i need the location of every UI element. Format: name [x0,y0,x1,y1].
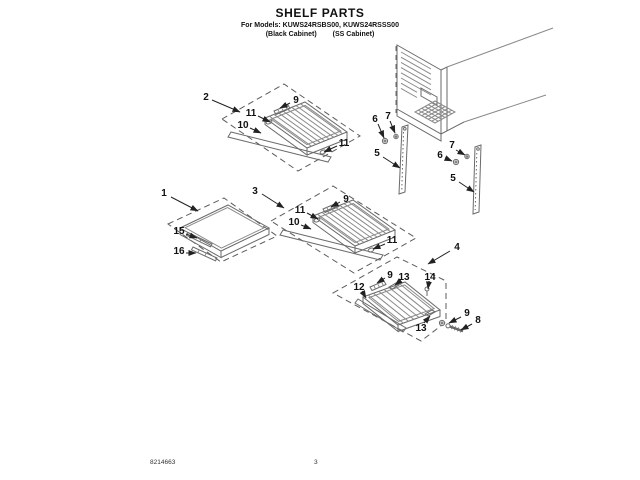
washer-icon [382,138,387,143]
mounting-screw [446,324,463,333]
glass-shelf-top [180,205,269,251]
callout-label-9: 9 [387,270,393,281]
callout-label-14: 14 [424,272,436,283]
callout-label-4: 4 [454,242,460,253]
assembly-outlines [168,84,446,341]
callout-arrow-8 [461,324,472,330]
cabinet-side-bottom-edge [464,95,546,122]
callout-label-15: 15 [173,226,185,237]
cabinet-floor-edge [441,122,464,134]
callout-label-9: 9 [464,308,470,319]
callout-label-16: 16 [173,246,185,257]
callout-label-11: 11 [387,235,398,246]
document-number: 8214663 [150,459,175,466]
callout-label-11: 11 [339,138,350,149]
callout-label-5: 5 [450,173,456,184]
shelf-wires [269,104,342,146]
callout-label-7: 7 [385,111,391,122]
callout-arrow-6 [445,158,452,161]
wire-shelf-frame [313,200,395,246]
callout-label-13: 13 [415,323,427,334]
screw-icon [465,154,469,158]
parts-diagram-page: SHELF PARTS For Models: KUWS24RSBS00, KU… [0,0,640,480]
cabinet-rear-view [396,28,553,141]
shelf-trim-clip-15 [187,233,213,247]
callout-label-11: 11 [295,205,306,216]
shelf-trim-clip-16 [192,247,218,261]
callout-arrow-5 [459,182,474,192]
callout-label-1: 1 [161,188,167,199]
cabinet-panel-thickness [441,67,447,131]
callout-label-6: 6 [437,150,443,161]
cabinet-side-top-edge [447,28,553,67]
shelf-wires [317,202,390,244]
screw-icon [394,134,398,138]
callout-label-9: 9 [293,95,299,106]
callout-label-6: 6 [372,114,378,125]
callout-arrow-7 [390,121,395,133]
rail-slots [402,132,404,190]
callout-label-2: 2 [203,92,209,103]
callout-arrow-7 [456,150,465,155]
callout-arrow-10 [301,225,311,229]
page-number: 3 [314,459,318,466]
callout-arrow-3 [262,194,284,208]
exploded-parts-diagram: 2 9 11 10 11 6 7 5 7 6 5 1 15 16 3 9 11 … [0,0,640,480]
callout-label-7: 7 [449,140,455,151]
condenser-grille [415,101,455,123]
washer-icon [453,159,458,164]
glass-shelf-assembly [180,205,269,261]
callout-arrow-13 [424,316,430,323]
callout-label-13: 13 [398,272,410,283]
callout-label-9: 9 [343,194,349,205]
shelf-rail-left [399,125,408,194]
callout-arrow-2 [212,100,240,112]
callout-label-11: 11 [246,108,257,119]
callout-label-5: 5 [374,148,380,159]
callout-arrow-10 [250,128,261,133]
callout-label-10: 10 [288,217,300,228]
shelf-front-trim [228,132,331,162]
lower-wire-shelf-assembly [355,281,463,333]
shelf-front-trim [280,230,383,260]
callout-arrow-1 [171,197,198,211]
callout-label-8: 8 [475,315,481,326]
callout-label-10: 10 [237,120,249,131]
shelf-rail-right [473,145,481,214]
rail-slots [475,153,477,210]
callout-arrow-6 [378,124,384,138]
callout-arrow-5 [383,157,400,168]
wire-shelf-frame [265,102,347,148]
callout-arrow-9 [449,317,461,323]
callout-label-3: 3 [252,186,258,197]
callout-label-12: 12 [353,282,365,293]
washer-icon [439,320,444,325]
callout-arrow-4 [428,251,450,264]
rail-fasteners [382,134,469,164]
